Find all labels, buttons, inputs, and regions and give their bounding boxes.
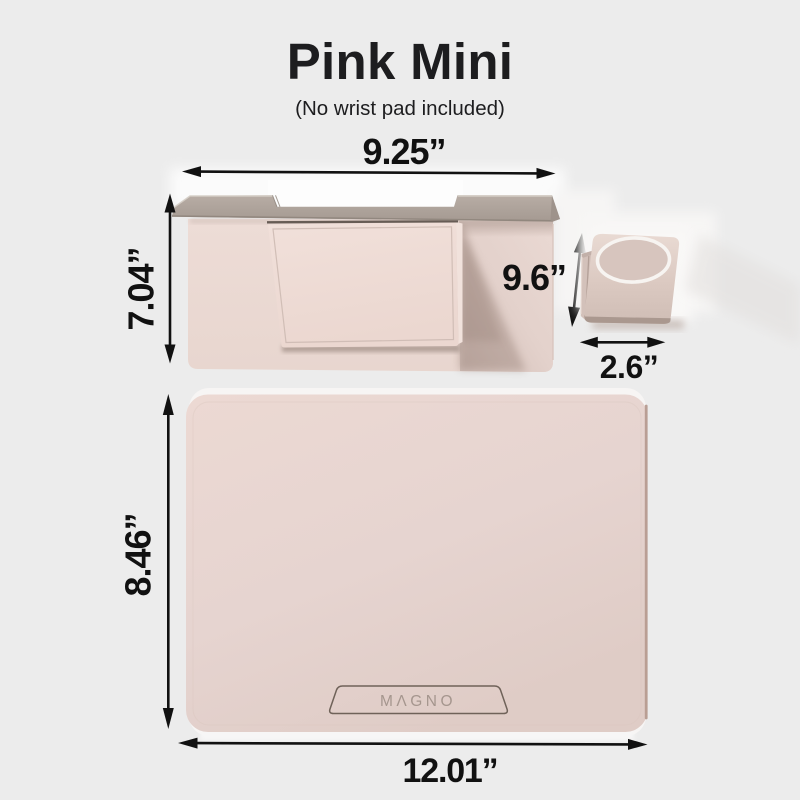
svg-text:12.01”: 12.01” xyxy=(403,752,498,790)
svg-text:7.04”: 7.04” xyxy=(121,247,162,330)
svg-text:8.46”: 8.46” xyxy=(118,513,159,596)
svg-text:(No wrist pad included): (No wrist pad included) xyxy=(295,97,505,120)
svg-text:Pink Mini: Pink Mini xyxy=(287,33,514,90)
svg-text:9.25”: 9.25” xyxy=(362,131,445,172)
svg-text:2.6”: 2.6” xyxy=(600,349,658,385)
svg-text:MΛGNO: MΛGNO xyxy=(380,693,456,710)
svg-text:9.6”: 9.6” xyxy=(502,257,566,298)
